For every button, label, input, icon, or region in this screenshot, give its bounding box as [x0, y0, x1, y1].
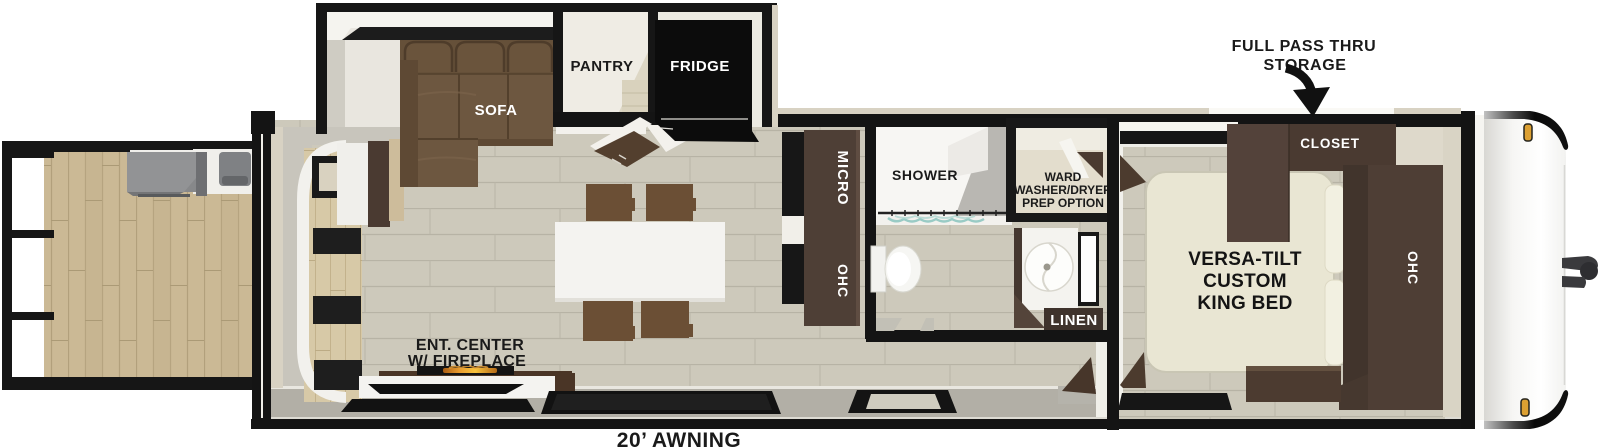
- svg-text:SHOWER: SHOWER: [892, 167, 958, 183]
- svg-text:LINEN: LINEN: [1050, 312, 1098, 329]
- svg-text:MICRO: MICRO: [834, 151, 851, 206]
- svg-text:FRIDGE: FRIDGE: [670, 58, 730, 75]
- svg-text:VERSA-TILT: VERSA-TILT: [1188, 249, 1302, 270]
- svg-text:FULL PASS THRU: FULL PASS THRU: [1232, 38, 1377, 55]
- svg-text:PANTRY: PANTRY: [571, 58, 634, 75]
- svg-text:OHC: OHC: [835, 264, 851, 298]
- svg-text:CLOSET: CLOSET: [1300, 136, 1360, 151]
- svg-text:WASHER/DRYER: WASHER/DRYER: [1014, 183, 1112, 197]
- svg-text:CUSTOM: CUSTOM: [1203, 271, 1287, 292]
- svg-text:W/ FIREPLACE: W/ FIREPLACE: [408, 353, 526, 370]
- svg-text:WARD: WARD: [1045, 170, 1082, 184]
- svg-text:OHC: OHC: [1405, 251, 1421, 285]
- svg-text:KING BED: KING BED: [1197, 293, 1292, 314]
- svg-text:20’ AWNING: 20’ AWNING: [617, 429, 741, 448]
- svg-text:SOFA: SOFA: [475, 102, 518, 119]
- svg-text:STORAGE: STORAGE: [1263, 57, 1346, 74]
- svg-text:PREP OPTION: PREP OPTION: [1022, 196, 1104, 210]
- svg-text:ENT. CENTER: ENT. CENTER: [416, 337, 524, 354]
